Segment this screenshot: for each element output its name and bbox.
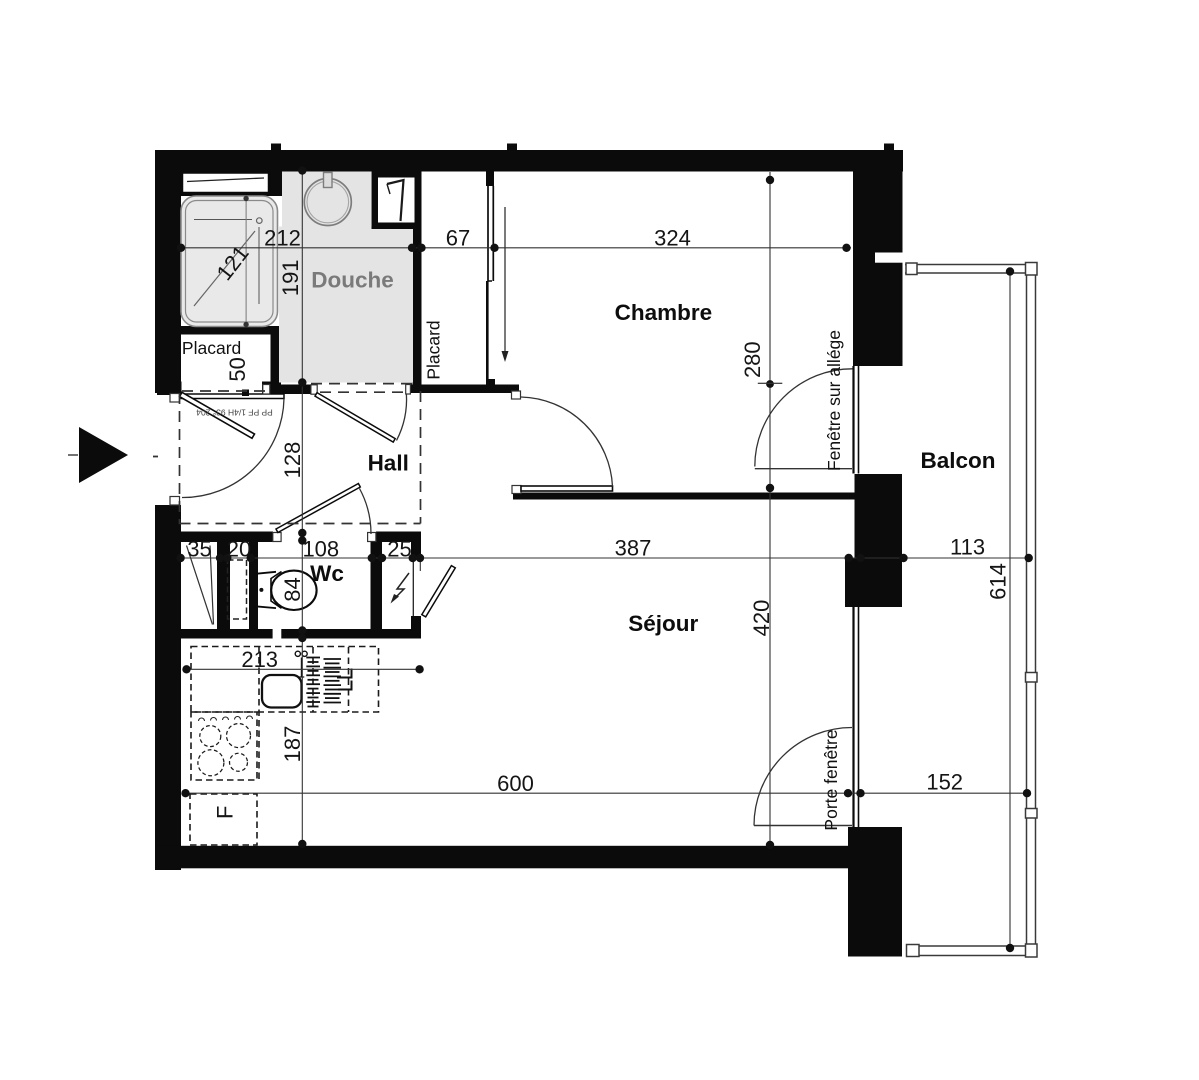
- svg-text:387: 387: [615, 536, 652, 561]
- svg-text:Porte fenêtre: Porte fenêtre: [821, 729, 841, 830]
- svg-text:113: 113: [950, 535, 985, 560]
- svg-text:213: 213: [241, 647, 278, 672]
- svg-text:Chambre: Chambre: [615, 300, 713, 325]
- svg-text:Séjour: Séjour: [628, 611, 698, 636]
- svg-text:191: 191: [278, 259, 303, 296]
- svg-text:152: 152: [926, 770, 963, 795]
- svg-text:Douche: Douche: [311, 268, 394, 293]
- svg-text:128: 128: [280, 442, 305, 479]
- svg-text:280: 280: [740, 341, 765, 378]
- svg-text:Balcon: Balcon: [920, 448, 995, 473]
- svg-text:614: 614: [986, 563, 1011, 600]
- svg-text:PP PF 1/4H 93° 204: PP PF 1/4H 93° 204: [196, 408, 273, 418]
- svg-text:108: 108: [302, 537, 339, 562]
- svg-text:35: 35: [187, 537, 211, 562]
- svg-text:420: 420: [749, 600, 774, 637]
- svg-text:F: F: [213, 806, 238, 819]
- svg-text:600: 600: [497, 771, 534, 796]
- svg-text:67: 67: [446, 226, 470, 251]
- svg-text:20: 20: [227, 537, 251, 562]
- svg-text:Hall: Hall: [368, 451, 409, 476]
- svg-text:Placard: Placard: [182, 338, 241, 358]
- svg-text:50: 50: [225, 357, 250, 381]
- svg-text:84: 84: [280, 577, 305, 601]
- svg-text:324: 324: [654, 226, 691, 251]
- svg-text:25: 25: [387, 537, 411, 562]
- svg-text:212: 212: [264, 226, 301, 251]
- svg-text:Wc: Wc: [310, 561, 344, 586]
- svg-text:Fenêtre sur allége: Fenêtre sur allége: [824, 330, 844, 471]
- svg-text:Placard: Placard: [424, 320, 444, 379]
- svg-text:187: 187: [280, 726, 305, 763]
